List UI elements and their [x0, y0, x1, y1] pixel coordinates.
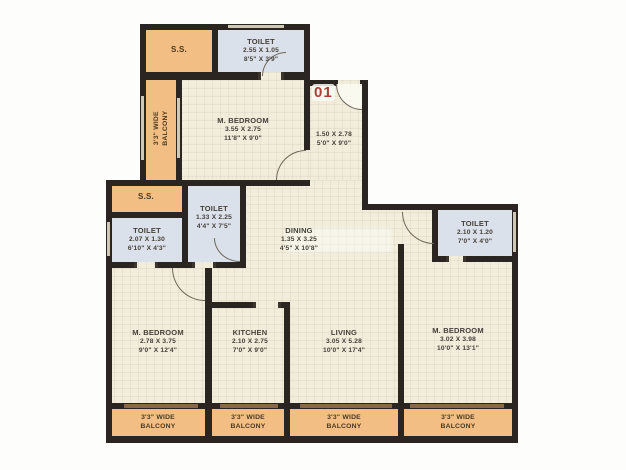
- door-jamb: [278, 302, 281, 308]
- wall: [106, 212, 182, 218]
- label-living: LIVING 3.05 X 5.28 10'0" X 17'4": [299, 328, 389, 355]
- label-balcony-1: 3'3" WIDE BALCONY: [118, 413, 198, 431]
- door-jamb: [155, 262, 158, 268]
- door-jamb: [463, 256, 466, 262]
- label-balcony-4: 3'3" WIDE BALCONY: [418, 413, 498, 431]
- label-toilet-top: TOILET 2.55 X 1.05 8'5" X 3'9": [216, 37, 306, 64]
- window: [177, 98, 180, 158]
- label-side-balcony: 3'3" WIDE BALCONY: [152, 78, 170, 178]
- wall: [106, 180, 310, 186]
- door-jamb: [213, 262, 216, 268]
- floor-plan: 01 S.S. TOILET 2.55 X 1.05 8'5" X 3'9" 3…: [0, 0, 626, 470]
- wall: [140, 24, 310, 30]
- label-toilet-right: TOILET 2.10 X 1.20 7'0" X 4'0": [430, 219, 520, 246]
- label-mbed-left: M. BEDROOM 2.78 X 3.75 9'0" X 12'4": [113, 328, 203, 355]
- balcony-window: [410, 404, 504, 408]
- balcony-window: [300, 404, 392, 408]
- wall: [216, 262, 246, 268]
- label-balcony-2: 3'3" WIDE BALCONY: [208, 413, 288, 431]
- wall: [466, 256, 518, 262]
- wall: [362, 204, 518, 210]
- label-kitchen: KITCHEN 2.10 X 2.75 7'0" X 9'0": [205, 328, 295, 355]
- balcony-window: [124, 404, 198, 408]
- label-toilet-left: TOILET 2.07 X 1.30 6'10" X 4'3": [112, 226, 182, 253]
- label-dining: DINING 1.35 X 3.25 4'5" X 10'8": [254, 226, 344, 253]
- label-balcony-3: 3'3" WIDE BALCONY: [304, 413, 384, 431]
- label-ss-mid: S.S.: [116, 192, 176, 203]
- label-mbed-top: M. BEDROOM 3.55 X 2.75 11'8" X 9'0": [198, 116, 288, 143]
- door-jamb: [446, 256, 449, 262]
- wall: [398, 244, 404, 403]
- balcony-window: [220, 404, 278, 408]
- wall: [106, 436, 518, 443]
- window: [141, 96, 144, 160]
- door-jamb: [134, 262, 137, 268]
- unit-number: 01: [312, 84, 335, 101]
- label-foyer: 1.50 X 2.78 5'0" X 9'0": [294, 131, 374, 148]
- window: [107, 222, 110, 256]
- label-mbed-right: M. BEDROOM 3.02 X 3.98 10'0" X 13'1": [413, 326, 503, 353]
- door-jamb: [253, 302, 256, 308]
- label-ss-top: S.S.: [149, 45, 209, 56]
- wall: [207, 302, 253, 308]
- wall: [106, 180, 112, 443]
- label-toilet-mid: TOILET 1.33 X 2.25 4'4" X 7'5": [179, 204, 249, 231]
- window: [228, 25, 284, 28]
- door-jamb: [258, 72, 261, 80]
- wall: [398, 409, 404, 436]
